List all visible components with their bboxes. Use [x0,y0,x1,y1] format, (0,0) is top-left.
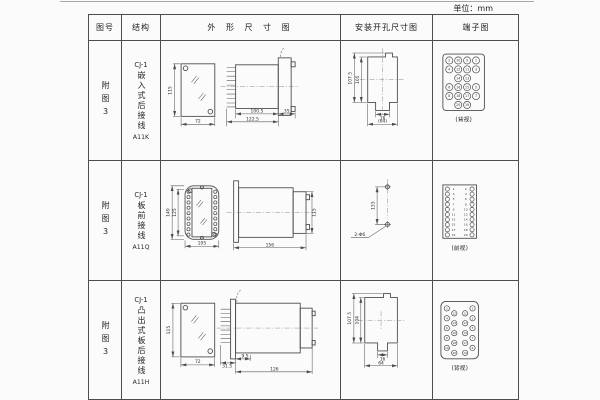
terminal-cell-row2: 1234567891011121314151617181920 (前视) [433,161,519,281]
side-view-row3: 9.5 31.5 126 [217,290,318,374]
dim-side-len-row2: 156 [266,242,275,248]
mounting-cell-row3: 107.5 104 16 64 [341,281,433,400]
svg-text:9: 9 [453,207,455,211]
dim-hole-pitch-row2: 133 [371,201,377,210]
svg-text:9: 9 [472,346,474,350]
dim-outer-h-row3: 107.5 [347,312,353,325]
dimension-table: 图号 结构 外 形 尺 寸 图 安装开孔尺寸图 端子图 附图3 CJ-1 嵌入式… [88,14,519,400]
structure-type-row1: 嵌入式后接线 [137,71,145,131]
dim-comb-len-row3: 31.5 [222,364,232,370]
structure-type-row3: 凸出式板后接线 [137,306,145,376]
svg-text:11: 11 [452,213,456,217]
dim-inset-row3: 9.5 [241,353,248,359]
svg-text:2: 2 [448,59,450,63]
front-terminal-dots-row2 [187,190,217,236]
terminal-grid-row3: 2468101214161820111315171913579 [444,306,475,356]
svg-text:14: 14 [453,321,457,325]
svg-text:18: 18 [456,94,460,98]
svg-text:12: 12 [464,213,468,217]
fig-no-row1: 附图3 [101,81,109,121]
front-view-row1: 115 72 [168,64,215,126]
svg-text:1: 1 [472,306,474,310]
svg-text:19: 19 [465,103,469,107]
svg-text:15: 15 [463,331,467,335]
model-code-row2: A11Q [133,244,150,251]
outline-cell-row2: 149 125 105 156 115 [161,161,341,281]
svg-text:10: 10 [464,207,468,211]
outline-drawing-row3: 115 72 9.5 31.5 [161,281,340,400]
dim-front-h-row3: 115 [166,326,172,335]
svg-text:19: 19 [463,351,467,355]
view-label-row2: (前视) [451,244,467,252]
svg-text:11: 11 [463,311,467,315]
structure-cell-row3: CJ-1 凸出式板后接线 A11H [122,281,161,400]
structure-type-row2: 板前接线 [137,201,145,241]
svg-text:4: 4 [465,192,467,196]
dim-outer-w-row1: (64) [378,119,387,125]
svg-text:12: 12 [453,311,457,315]
mounting-cell-row1: 107.5 105 16 (64) [341,41,433,161]
dim-body-len-row3: 126 [270,366,279,372]
header-structure: 结构 [122,15,161,41]
outline-cell-row1: 115 72 100.5 122.5 35 [161,41,341,161]
view-label-row3: (背视) [451,364,467,372]
svg-text:16: 16 [453,331,457,335]
svg-text:7: 7 [453,202,455,206]
dim-front-w-row3: 72 [195,359,201,365]
svg-text:9: 9 [466,59,468,63]
dim-outer-h-row1: 107.5 [347,72,353,85]
dim-front-outer-h-row2: 149 [165,208,171,217]
fig-no-row2: 附图3 [101,201,109,241]
dim-inner-h-row1: 105 [355,75,361,84]
header-mounting: 安装开孔尺寸图 [341,15,433,41]
svg-text:20: 20 [464,233,468,237]
model-label-row3: CJ-1 [134,296,147,304]
side-view-row1: 100.5 122.5 35 [221,47,299,126]
outline-drawing-row2: 149 125 105 156 115 [161,161,340,280]
front-view-row2: 149 125 105 [165,186,218,248]
svg-text:5: 5 [475,85,477,89]
terminal-grid-row2: 1234567891011121314151617181920 [445,187,474,237]
svg-text:15: 15 [452,223,456,227]
mounting-drawing-row2: 133 2-Φ6 [341,161,432,280]
mounting-drawing-row1: 107.5 105 16 (64) [341,41,432,160]
svg-text:1: 1 [475,59,477,63]
hole-label-row2: 2-Φ6 [354,232,365,238]
dim-side-h-row2: 115 [312,208,318,217]
svg-text:6: 6 [448,85,450,89]
dim-flange-len-row1: 35 [284,108,290,114]
svg-text:12: 12 [456,68,460,72]
svg-text:3: 3 [475,68,477,72]
dim-front-w-row1: 72 [195,119,201,125]
model-code-row3: A11H [133,379,150,386]
terminal-cell-row1: 2109141211314136161558181772019 (背视) [433,41,519,161]
front-view-row3: 115 72 [166,303,215,367]
svg-text:1: 1 [453,187,455,191]
fig-no-row3: 附图3 [101,321,109,361]
svg-text:18: 18 [453,341,457,345]
view-label-row1: (背视) [455,115,471,123]
model-code-row1: A11K [133,134,149,141]
terminal-diagram-row2: 1234567891011121314151617181920 (前视) [433,161,519,280]
svg-text:4: 4 [448,68,450,72]
header-outline: 外 形 尺 寸 图 [161,15,341,41]
outline-drawing-row1: 115 72 100.5 122.5 35 [161,41,340,160]
structure-cell-row1: CJ-1 嵌入式后接线 A11K [122,41,161,161]
svg-text:13: 13 [465,76,469,80]
svg-text:17: 17 [452,228,456,232]
dim-body-len-row1: 100.5 [251,108,264,114]
terminal-diagram-row3: 2468101214161820111315171913579 (背视) [433,281,519,400]
svg-text:6: 6 [465,197,467,201]
terminal-diagram-row1: 2109141211314136161558181772019 (背视) [433,41,519,160]
svg-text:13: 13 [463,321,467,325]
top-rule [60,1,534,2]
fig-no-cell-row2: 附图3 [89,161,122,281]
header-fig-no: 图号 [89,15,122,41]
scanned-manual-page: 单位：mm 图号 结构 外 形 尺 寸 图 安装开孔尺寸图 端子图 附图3 CJ… [0,0,600,400]
mounting-cell-row2: 133 2-Φ6 [341,161,433,281]
fig-no-cell-row1: 附图3 [89,41,122,161]
svg-text:6: 6 [446,326,448,330]
fig-no-cell-row3: 附图3 [89,281,122,400]
svg-text:14: 14 [456,76,460,80]
mounting-drawing-row3: 107.5 104 16 64 [341,281,432,400]
svg-text:16: 16 [464,223,468,227]
structure-cell-row2: CJ-1 板前接线 A11Q [122,161,161,281]
dim-outer-w-row3: 64 [378,360,384,366]
svg-text:8: 8 [446,336,448,340]
dim-front-w-row2: 105 [198,241,207,247]
svg-text:2: 2 [465,187,467,191]
dim-total-len-row1: 122.5 [246,116,259,122]
svg-text:13: 13 [452,218,456,222]
svg-text:19: 19 [452,233,456,237]
terminal-cell-row3: 2468101214161820111315171913579 (背视) [433,281,519,400]
model-label-row1: CJ-1 [134,61,147,69]
svg-text:3: 3 [472,316,474,320]
svg-text:16: 16 [456,85,460,89]
svg-text:20: 20 [453,351,457,355]
svg-text:15: 15 [465,85,469,89]
svg-text:14: 14 [464,218,468,222]
svg-text:8: 8 [465,202,467,206]
svg-text:2: 2 [446,306,448,310]
terminal-grid-row1: 2109141211314136161558181772019 [446,57,480,109]
svg-text:4: 4 [446,316,448,320]
svg-text:18: 18 [464,228,468,232]
svg-text:10: 10 [445,346,449,350]
svg-text:7: 7 [475,94,477,98]
svg-text:20: 20 [456,103,460,107]
svg-text:5: 5 [472,326,474,330]
dim-front-h-row1: 115 [168,86,174,95]
unit-note: 单位：mm [453,3,493,14]
svg-text:8: 8 [448,94,450,98]
svg-text:17: 17 [465,94,469,98]
svg-text:10: 10 [456,59,460,63]
header-terminal: 端子图 [433,15,519,41]
dim-inner-h-row3: 104 [354,316,360,325]
outline-cell-row3: 115 72 9.5 31.5 [161,281,341,400]
svg-text:7: 7 [472,336,474,340]
dim-front-inner-h-row2: 125 [172,208,178,217]
svg-text:11: 11 [465,68,469,72]
svg-text:3: 3 [453,192,455,196]
side-view-row2: 156 115 [227,181,318,250]
model-label-row2: CJ-1 [134,191,147,199]
svg-text:5: 5 [453,197,455,201]
svg-text:17: 17 [463,341,467,345]
